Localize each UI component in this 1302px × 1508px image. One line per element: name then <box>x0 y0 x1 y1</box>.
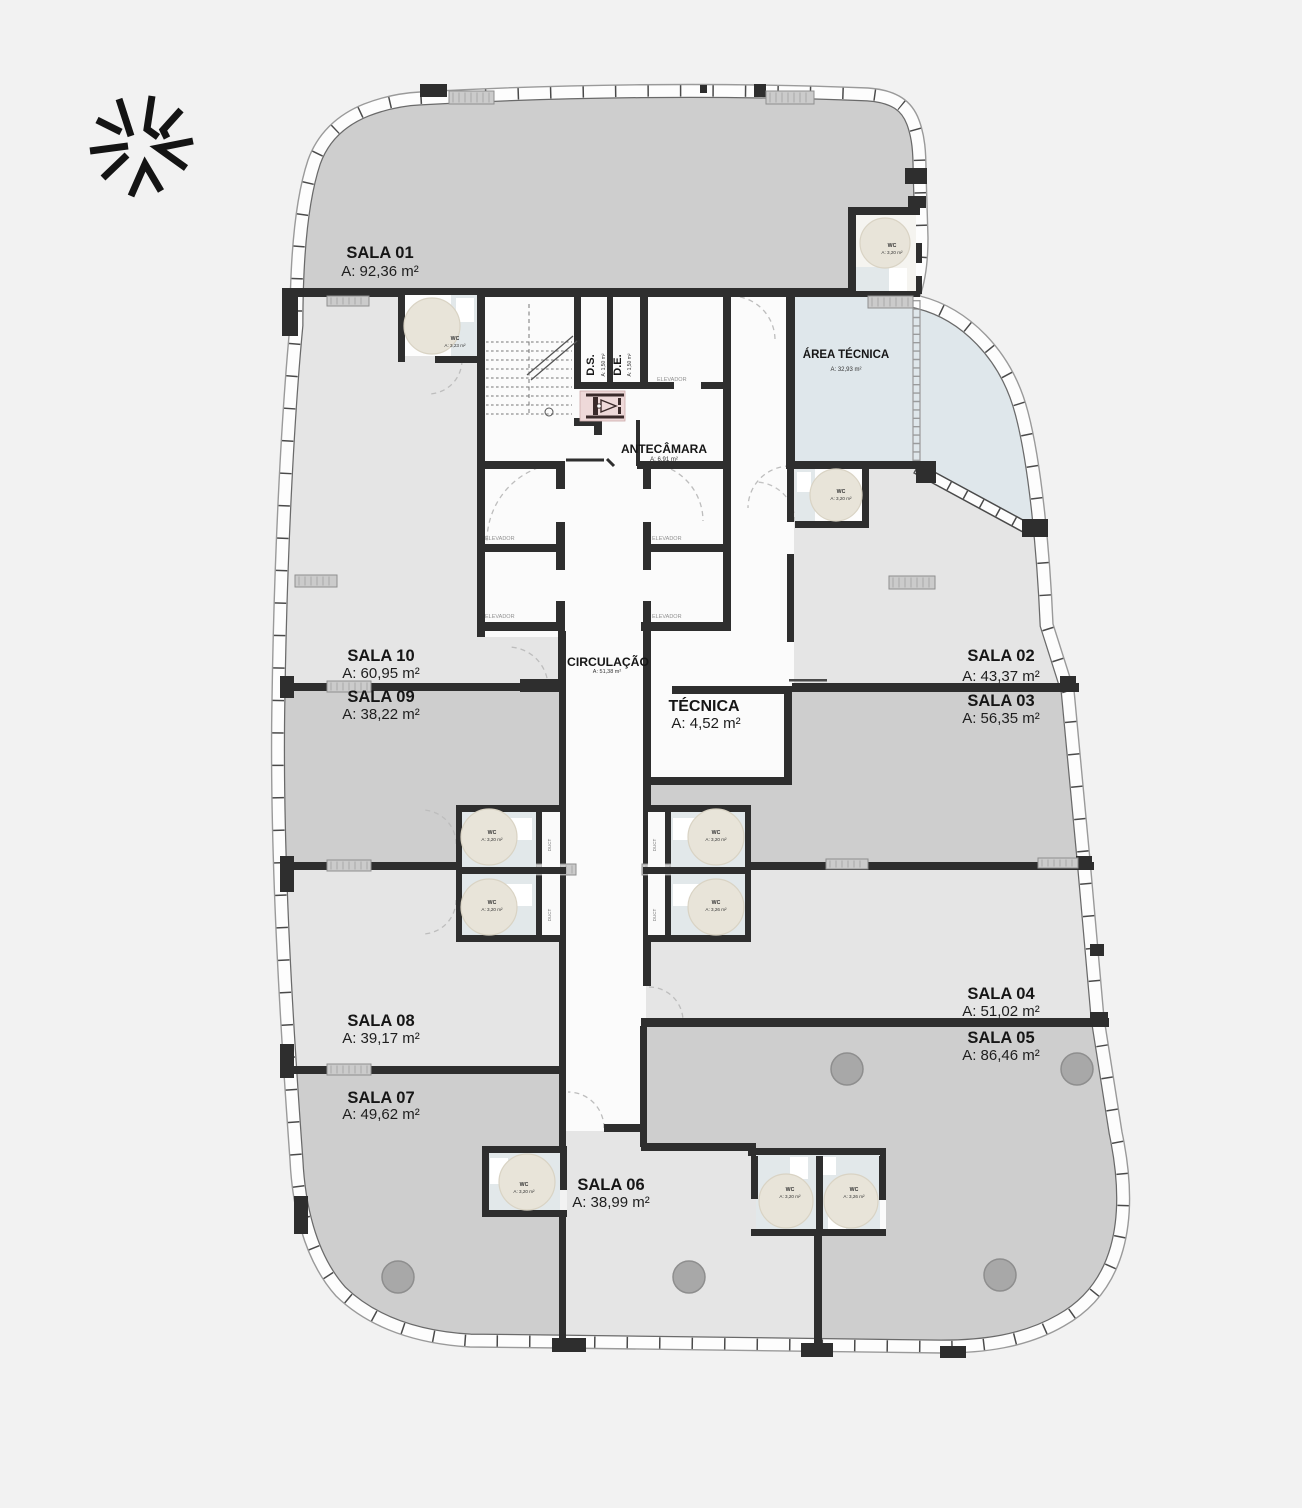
svg-text:ELEVADOR: ELEVADOR <box>652 614 682 620</box>
svg-text:SALA 09: SALA 09 <box>347 688 414 706</box>
svg-text:WC: WC <box>837 489 846 495</box>
svg-text:D.S.: D.S. <box>585 354 597 375</box>
svg-text:A: 92,36 m²: A: 92,36 m² <box>341 263 419 280</box>
svg-text:A: 60,95 m²: A: 60,95 m² <box>342 665 420 682</box>
svg-text:A: 3,26 m²: A: 3,26 m² <box>843 1194 865 1199</box>
svg-text:WC: WC <box>712 830 721 836</box>
svg-text:A: 3,20 m²: A: 3,20 m² <box>779 1194 801 1199</box>
svg-text:A: 3,20 m²: A: 3,20 m² <box>481 907 503 912</box>
svg-text:D.E.: D.E. <box>612 354 624 375</box>
svg-text:WC: WC <box>451 336 460 342</box>
svg-text:A: 51,02 m²: A: 51,02 m² <box>962 1003 1040 1020</box>
svg-text:A: 6,91 m²: A: 6,91 m² <box>650 457 678 463</box>
svg-text:WC: WC <box>488 900 497 906</box>
svg-text:A: 39,17 m²: A: 39,17 m² <box>342 1030 420 1047</box>
svg-text:A: 32,93 m²: A: 32,93 m² <box>830 367 861 373</box>
svg-text:A: 3,23 m²: A: 3,23 m² <box>444 343 466 348</box>
svg-text:SALA 05: SALA 05 <box>967 1029 1034 1047</box>
svg-text:A: 3,20 m²: A: 3,20 m² <box>881 250 903 255</box>
svg-text:A: 1,50 m²: A: 1,50 m² <box>601 353 607 376</box>
svg-text:A: 56,35 m²: A: 56,35 m² <box>962 710 1040 727</box>
svg-text:WC: WC <box>850 1187 859 1193</box>
svg-text:A: 3,26 m²: A: 3,26 m² <box>705 907 727 912</box>
svg-text:A: 3,20 m²: A: 3,20 m² <box>481 837 503 842</box>
svg-text:DUCT: DUCT <box>652 839 657 852</box>
svg-text:SALA 10: SALA 10 <box>347 647 414 665</box>
svg-text:A: 38,22 m²: A: 38,22 m² <box>342 706 420 723</box>
svg-text:A: 3,20 m²: A: 3,20 m² <box>830 496 852 501</box>
svg-text:WC: WC <box>520 1182 529 1188</box>
svg-text:ÁREA TÉCNICA: ÁREA TÉCNICA <box>803 348 889 361</box>
svg-text:ELEVADOR: ELEVADOR <box>657 377 687 383</box>
svg-text:ELEVADOR: ELEVADOR <box>485 614 515 620</box>
svg-text:DUCT: DUCT <box>652 909 657 922</box>
svg-text:SALA 08: SALA 08 <box>347 1012 414 1030</box>
svg-text:ELEVADOR: ELEVADOR <box>652 536 682 542</box>
svg-text:A: 3,20 m²: A: 3,20 m² <box>513 1189 535 1194</box>
svg-text:SALA 07: SALA 07 <box>347 1089 414 1107</box>
svg-text:WC: WC <box>712 900 721 906</box>
svg-text:WC: WC <box>786 1187 795 1193</box>
svg-text:WC: WC <box>488 830 497 836</box>
svg-text:SALA 06: SALA 06 <box>577 1176 644 1194</box>
svg-text:TÉCNICA: TÉCNICA <box>668 696 740 715</box>
svg-text:DUCT: DUCT <box>547 839 552 852</box>
svg-text:A: 4,52 m²: A: 4,52 m² <box>671 715 740 732</box>
svg-text:ELEVADOR: ELEVADOR <box>485 536 515 542</box>
svg-text:SALA 03: SALA 03 <box>967 692 1034 710</box>
svg-text:SALA 02: SALA 02 <box>967 647 1034 665</box>
svg-text:ANTECÂMARA: ANTECÂMARA <box>621 441 707 456</box>
svg-text:DUCT: DUCT <box>547 909 552 922</box>
svg-text:A: 86,46 m²: A: 86,46 m² <box>962 1047 1040 1064</box>
svg-text:A: 51,38 m²: A: 51,38 m² <box>593 669 622 675</box>
svg-text:A: 38,99 m²: A: 38,99 m² <box>572 1194 650 1211</box>
svg-text:WC: WC <box>888 243 897 249</box>
svg-text:SALA 04: SALA 04 <box>967 985 1035 1003</box>
svg-text:A: 43,37 m²: A: 43,37 m² <box>962 668 1040 685</box>
svg-text:A: 49,62 m²: A: 49,62 m² <box>342 1106 420 1123</box>
svg-text:CIRCULAÇÃO: CIRCULAÇÃO <box>567 654 649 669</box>
svg-text:A: 3,20 m²: A: 3,20 m² <box>705 837 727 842</box>
svg-text:A: 1,50 m²: A: 1,50 m² <box>627 353 633 376</box>
svg-text:SALA 01: SALA 01 <box>346 244 413 262</box>
